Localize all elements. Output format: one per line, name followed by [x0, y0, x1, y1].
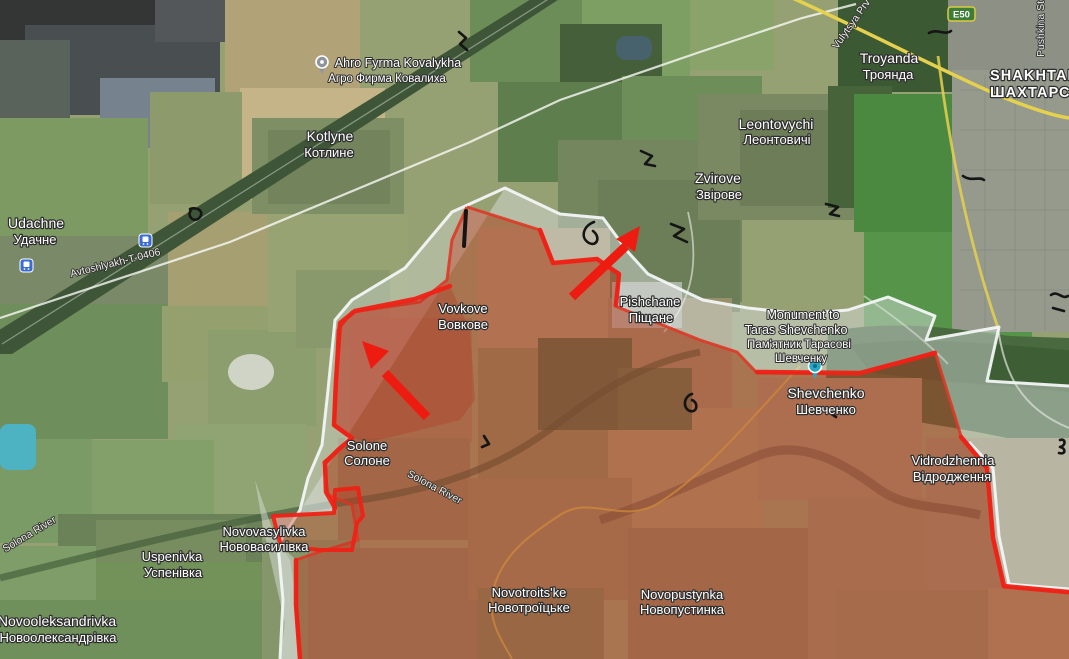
uspenivka-latin: Uspenivka — [142, 549, 203, 564]
train-station-icon[interactable] — [20, 259, 33, 272]
solone-latin: Solone — [347, 438, 387, 453]
vovkove-latin: Vovkove — [438, 301, 487, 316]
zvirove-cyrillic: Звірове — [696, 187, 742, 202]
novooleksandrivka-cyrillic: Новоолександрівка — [0, 630, 117, 645]
label-shakhtarske: SHAKHTARSK ШАХТАРСЬКИ — [990, 68, 1069, 101]
udachne-cyrillic: Удачне — [14, 232, 57, 247]
kotlyne-cyrillic: Котлине — [304, 145, 353, 160]
troyanda-latin: Troyanda — [860, 50, 919, 66]
label-pishchane: Pishchane Піщане — [620, 294, 681, 325]
zvirove-latin: Zvirove — [695, 170, 741, 186]
label-novotroitske: Novotroits'ke Новотроїцьке — [488, 585, 570, 615]
novovasylivka-latin: Novovasylivka — [222, 524, 306, 539]
label-vidrodzhennia: Vidrodzhennia Відродження — [912, 453, 996, 484]
e50-badge-label: E50 — [953, 10, 970, 21]
udachne-latin: Udachne — [8, 215, 64, 231]
monument-line1: Monument to — [767, 308, 840, 322]
troyanda-cyrillic: Троянда — [863, 67, 914, 82]
label-uspenivka: Uspenivka Успенівка — [142, 549, 203, 580]
shevchenko-cyrillic: Шевченко — [796, 402, 856, 417]
ahro-cyrillic: Агро Фирма Ковалиха — [328, 73, 446, 85]
shakhtarske-cyrillic: ШАХТАРСЬКИ — [990, 85, 1069, 101]
pishchane-latin: Pishchane — [620, 294, 681, 309]
shakhtarske-latin: SHAKHTARSK — [990, 68, 1069, 84]
label-solone: Solone Солоне — [344, 438, 390, 468]
kotlyne-latin: Kotlyne — [307, 128, 354, 144]
uspenivka-cyrillic: Успенівка — [144, 565, 203, 580]
pushkina-st-label: Pushkina St — [1035, 1, 1047, 57]
vidrodzhennia-latin: Vidrodzhennia — [912, 453, 996, 468]
novovasylivka-cyrillic: Нововасилівка — [220, 539, 310, 554]
novotroitske-cyrillic: Новотроїцьке — [488, 600, 570, 615]
monument-line3: Пам'ятник Тарасові — [747, 339, 851, 351]
ahro-latin: Ahro Fyrma Kovalykha — [335, 56, 461, 70]
e50-badge: E50 — [948, 7, 975, 21]
label-leontovychi: Leontovychi Леонтовичі — [739, 116, 814, 147]
leontovychi-cyrillic: Леонтовичі — [743, 132, 810, 147]
train-station-icon[interactable] — [139, 234, 152, 247]
label-vovkove: Vovkove Вовкове — [438, 301, 488, 332]
novotroitske-latin: Novotroits'ke — [492, 585, 567, 600]
vovkove-cyrillic: Вовкове — [438, 317, 488, 332]
map-canvas[interactable]: E50 Ahro Fyrma Kovalykha Агро Фирма Кова… — [0, 0, 1069, 659]
vidrodzhennia-cyrillic: Відродження — [913, 469, 991, 484]
leontovychi-latin: Leontovychi — [739, 116, 814, 132]
monument-line2: Taras Shevchenko — [745, 323, 848, 337]
novooleksandrivka-latin: Novooleksandrivka — [0, 613, 116, 629]
pishchane-cyrillic: Піщане — [629, 310, 674, 325]
monument-line4: Шевченку — [775, 353, 827, 365]
label-novovasylivka: Novovasylivka Нововасилівка — [220, 524, 310, 554]
shevchenko-latin: Shevchenko — [787, 385, 864, 401]
novopustynka-latin: Novopustynka — [641, 587, 724, 602]
solone-cyrillic: Солоне — [344, 453, 390, 468]
label-novopustynka: Novopustynka Новопустинка — [640, 587, 725, 617]
novopustynka-cyrillic: Новопустинка — [640, 602, 725, 617]
